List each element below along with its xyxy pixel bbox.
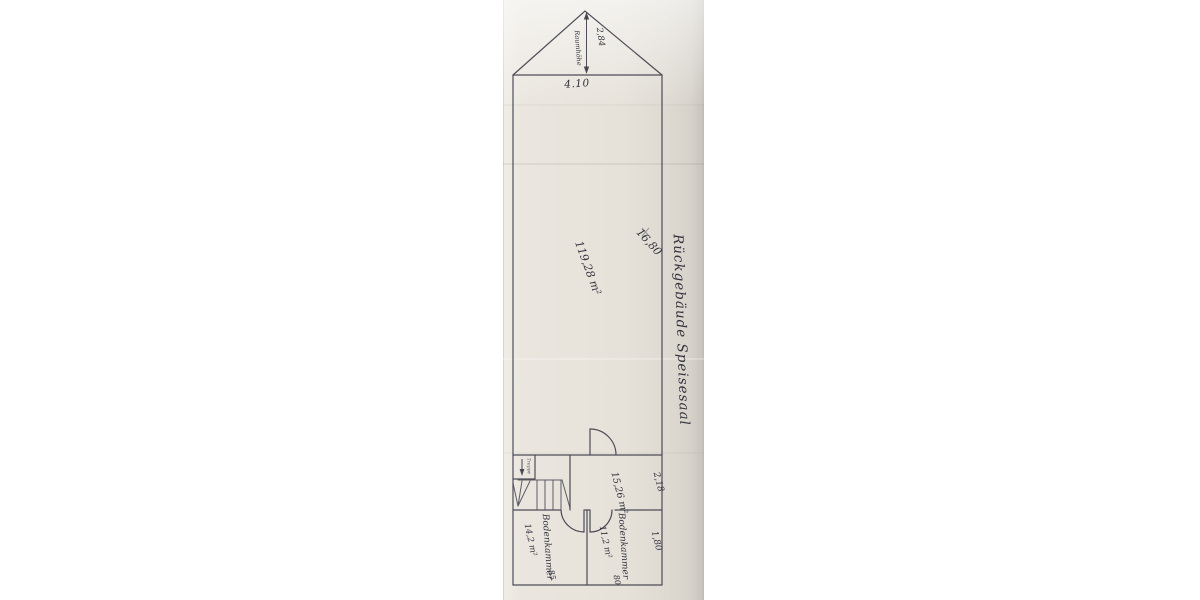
stair-landing-box	[513, 455, 535, 479]
left-room-door-width: 85	[547, 569, 558, 581]
stair-treads	[513, 480, 570, 510]
arrow-head-down-icon	[584, 67, 589, 75]
floor-plan-drawing	[0, 0, 1200, 600]
right-room-door-width: 80	[612, 574, 623, 586]
gable-roof-lines	[513, 11, 662, 75]
stair-label: Treppe	[525, 458, 531, 474]
hall-door-swing-arc	[590, 429, 616, 455]
left-room-door-arc	[561, 510, 584, 532]
gable-base-dimension: 4.10	[564, 77, 590, 91]
scanned-floor-plan-page: 2,84 Raumhöhe 4.10 16,80 119,28 m² Rückg…	[0, 0, 1200, 600]
